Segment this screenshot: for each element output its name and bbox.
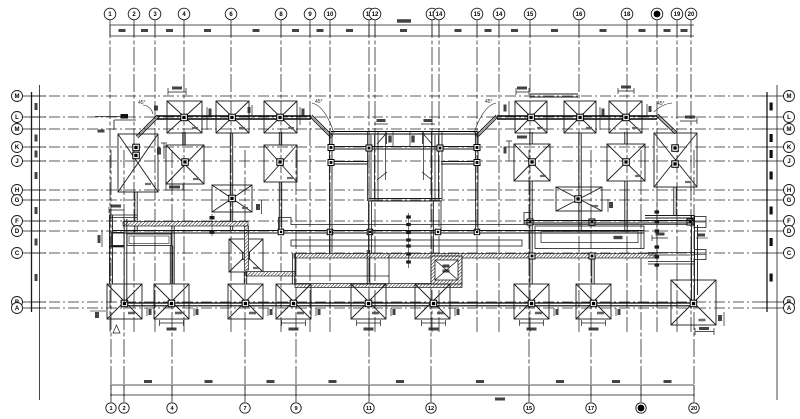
svg-text:J: J [787,159,790,165]
svg-text:G: G [15,198,20,204]
svg-text:D: D [787,229,792,235]
svg-text:16: 16 [576,12,583,18]
svg-text:M: M [15,127,20,133]
svg-text:K: K [787,145,792,151]
svg-text:1: 1 [109,406,112,412]
svg-text:M: M [787,127,792,133]
svg-text:45°: 45° [138,100,146,106]
svg-text:12: 12 [428,406,434,412]
svg-text:G: G [787,198,792,204]
svg-text:45°: 45° [657,101,665,107]
svg-text:12: 12 [372,12,379,18]
svg-text:15: 15 [527,12,534,18]
svg-text:C: C [15,251,20,257]
svg-text:2: 2 [122,406,125,412]
svg-text:14: 14 [496,12,503,18]
svg-text:15: 15 [526,406,532,412]
svg-text:45°: 45° [315,99,323,105]
svg-text:17: 17 [588,406,594,412]
svg-text:14: 14 [436,12,443,18]
svg-text:A: A [787,306,792,312]
svg-text:L: L [787,115,791,121]
svg-text:19: 19 [674,12,681,18]
svg-text:H: H [787,188,791,194]
svg-text:20: 20 [688,12,695,18]
svg-text:20: 20 [691,406,697,412]
svg-text:H: H [15,188,19,194]
svg-text:A: A [15,306,20,312]
svg-text:F: F [15,219,19,225]
svg-text:M: M [787,94,792,100]
svg-text:18: 18 [624,12,631,18]
svg-text:15: 15 [474,12,481,18]
svg-text:45°: 45° [485,99,493,105]
svg-text:11: 11 [366,406,372,412]
svg-text:F: F [787,219,791,225]
svg-text:C: C [787,251,792,257]
svg-text:9: 9 [294,406,297,412]
svg-text:K: K [15,145,20,151]
svg-text:10: 10 [327,12,334,18]
svg-text:M: M [15,94,20,100]
svg-text:J: J [15,159,18,165]
svg-text:7: 7 [243,406,246,412]
svg-text:L: L [15,115,19,121]
svg-text:D: D [15,229,20,235]
